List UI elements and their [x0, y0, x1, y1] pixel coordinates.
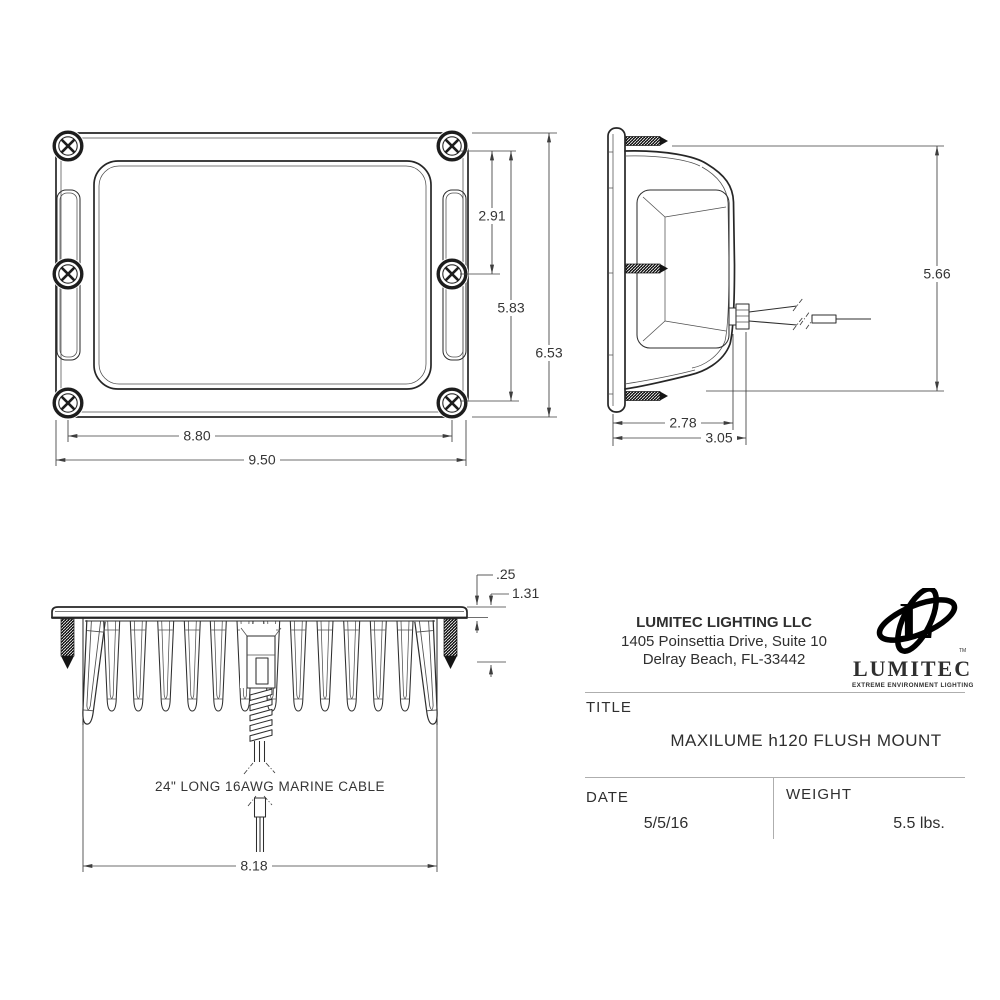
heatsink-fin	[415, 620, 442, 725]
phillips-screw-icon	[436, 130, 469, 163]
engineering-drawing: 2.91 5.83 6.53 8.80 9.50	[0, 0, 1000, 1000]
phillips-screw-icon	[52, 387, 85, 420]
front-hole-pitch-half-dim: 2.91	[478, 208, 505, 224]
title-label: TITLE	[586, 699, 632, 716]
heatsink-fin	[370, 621, 386, 711]
trademark-symbol: TM	[959, 648, 966, 654]
heatsink-fin	[184, 621, 200, 711]
heatsink-fin	[104, 621, 120, 711]
strain-relief-coil	[250, 689, 272, 741]
logo-tagline: EXTREME ENVIRONMENT LIGHTING	[852, 682, 970, 689]
heatsink-fin	[130, 621, 146, 711]
heatsink-extension-lines	[83, 607, 506, 872]
phillips-screw-icon	[436, 387, 469, 420]
wire-lead	[812, 315, 836, 323]
front-hole-pitch-dim: 5.83	[497, 300, 524, 316]
heatsink-fin	[397, 621, 413, 711]
bezel-inner-edge	[61, 138, 463, 412]
cable-bracket	[240, 624, 281, 688]
title-block-divider-top	[585, 692, 965, 693]
company-address-line1: 1405 Poinsettia Drive, Suite 10	[564, 633, 884, 650]
heatsink-fin	[344, 621, 360, 711]
side-depth-body-dim: 2.78	[669, 415, 696, 431]
bezel-outline	[56, 133, 468, 417]
company-name: LUMITEC LIGHTING LLC	[564, 614, 884, 631]
spec-sheet-page: 2.91 5.83 6.53 8.80 9.50	[0, 0, 1000, 1000]
front-view: 2.91 5.83 6.53 8.80 9.50	[52, 130, 568, 469]
date-value: 5/5/16	[576, 815, 756, 833]
front-width-dim: 9.50	[248, 452, 275, 468]
cable-note: 24" LONG 16AWG MARINE CABLE	[155, 779, 385, 794]
heatsink-fin	[290, 621, 306, 711]
title-block-divider-vertical	[773, 777, 774, 839]
phillips-screw-icon	[52, 258, 85, 291]
front-extension-lines	[56, 133, 557, 466]
heatsink-fin	[210, 621, 226, 711]
side-depth-total-dim: 3.05	[705, 430, 732, 446]
heatsink-width-dim: 8.18	[240, 858, 267, 874]
heatsink-view: 24" LONG 16AWG MARINE CABLE 8.18 .25 1.3…	[52, 566, 539, 874]
lens-outline	[94, 161, 431, 389]
heatsink-fin	[78, 620, 105, 725]
date-label: DATE	[586, 789, 629, 806]
side-view: 5.66 2.78 3.05	[608, 128, 955, 446]
recess-depth-dim: 1.31	[512, 585, 539, 601]
front-hole-width-dim: 8.80	[183, 428, 210, 444]
company-address-line2: Delray Beach, FL-33442	[564, 651, 884, 668]
flange-profile	[608, 128, 625, 412]
drawing-title: MAXILUME h120 FLUSH MOUNT	[616, 731, 996, 751]
phillips-screw-icon	[52, 130, 85, 163]
side-height-dim: 5.66	[923, 266, 950, 282]
weight-label: WEIGHT	[786, 786, 852, 803]
heatsink-fin	[158, 621, 174, 711]
flange-thickness-dim: .25	[496, 566, 516, 582]
cable-wires	[244, 741, 275, 852]
cable-gland	[729, 298, 871, 330]
title-block-divider-bottom	[585, 777, 965, 778]
weight-value: 5.5 lbs.	[819, 815, 1000, 833]
logo-letter: L	[900, 593, 935, 650]
front-height-dim: 6.53	[535, 345, 562, 361]
lens-inner-edge	[99, 166, 426, 384]
logo-wordmark: LUMITEC	[853, 656, 969, 682]
front-dimension-lines	[56, 133, 549, 460]
flange-bottom-view	[52, 607, 467, 618]
mounting-screws-side	[626, 137, 668, 401]
heatsink-fin	[317, 621, 333, 711]
lumitec-logo-icon: L	[872, 588, 962, 656]
side-extension-lines	[613, 146, 944, 446]
